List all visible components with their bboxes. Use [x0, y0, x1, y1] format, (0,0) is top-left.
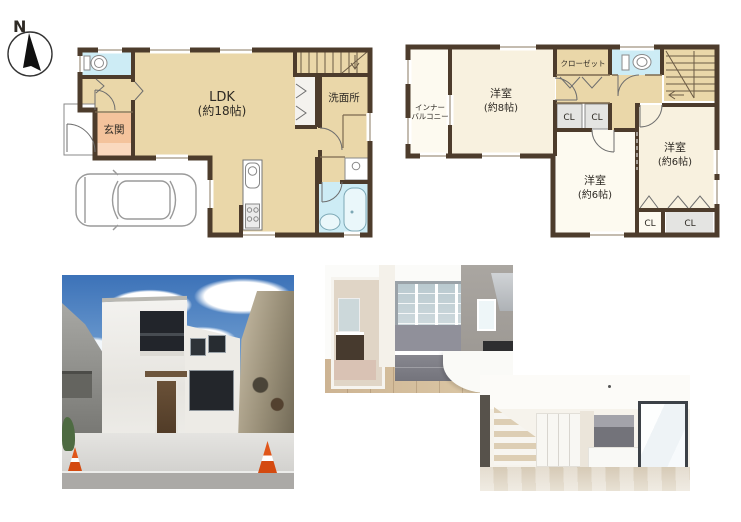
hallway-2f-lower — [608, 103, 637, 130]
cl-lower-right-label: CL — [684, 219, 695, 229]
entrance-label: 玄関 — [104, 123, 125, 136]
washroom-label: 洗面所 — [328, 92, 360, 104]
toilet-icon-1f — [84, 56, 107, 71]
washbasin-icon — [345, 158, 368, 180]
floorplan-second-floor: インナー バルコニー 洋室 (約8帖) クローゼット CL CL 洋室 (約6帖… — [403, 42, 721, 242]
house-balcony-opening — [140, 311, 184, 356]
entrance-step — [95, 143, 133, 156]
house-window-small-2 — [208, 335, 226, 353]
gas-stove — [483, 341, 513, 351]
kitchen-wall-column — [379, 265, 395, 367]
kitchen-counter — [243, 160, 262, 230]
living-staircase — [494, 407, 536, 465]
house-window-large — [189, 370, 234, 411]
hallway-2f — [556, 75, 662, 103]
ldk-label: LDK — [209, 90, 235, 105]
real-estate-flyer: N — [0, 0, 741, 522]
compass: N — [2, 14, 58, 84]
cl-upper-left-label: CL — [563, 113, 574, 123]
road — [62, 471, 294, 489]
front-door — [155, 379, 178, 440]
kitchen-stove-icon — [246, 204, 260, 228]
inner-balcony-label-1: インナー — [415, 103, 445, 112]
ceiling-light-point — [608, 385, 611, 388]
bedroom6-center-label: 洋室 — [584, 173, 606, 187]
compass-needle-icon — [23, 33, 41, 71]
photo-living-room — [480, 375, 690, 491]
toilet-icon-2f — [622, 55, 651, 71]
washroom-vanity — [336, 332, 364, 361]
stair-closet-1f — [295, 77, 317, 127]
bedroom6-center-size-label: (約6帖) — [578, 188, 612, 201]
living-wood-floor — [480, 467, 690, 491]
photo-house-exterior — [62, 275, 294, 489]
cl-lower-left-label: CL — [644, 219, 655, 229]
kitchen-window — [477, 299, 496, 331]
bedroom6-right-size-label: (約6帖) — [658, 155, 692, 168]
house-window-small-1 — [190, 338, 206, 356]
living-closet-doors — [536, 413, 582, 467]
neighbor-balcony — [62, 371, 92, 398]
washroom-mirror — [338, 298, 360, 332]
photo-kitchen — [325, 265, 513, 393]
living-doorway-dark — [480, 395, 490, 467]
car-icon — [76, 170, 196, 230]
washroom-doorway — [331, 277, 385, 389]
bedroom8-label: 洋室 — [490, 86, 512, 100]
entrance-eave — [145, 371, 187, 377]
floorplan-first-floor: LDK (約18帖) 玄関 洗面所 — [58, 42, 376, 242]
cl-upper-right-label: CL — [591, 113, 602, 123]
bedroom6-right-label: 洋室 — [664, 140, 686, 154]
closet-label: クローゼット — [561, 58, 606, 68]
kitchen-back-panel — [395, 325, 461, 351]
ldk-size-label: (約18帖) — [198, 103, 247, 118]
kitchen-upper-cabinets — [395, 281, 467, 331]
neighbor-building-right — [238, 291, 294, 453]
bedroom8-size-label: (約8帖) — [484, 101, 518, 114]
inner-balcony-label-2: バルコニー — [411, 112, 448, 121]
washroom-floor — [334, 360, 376, 380]
